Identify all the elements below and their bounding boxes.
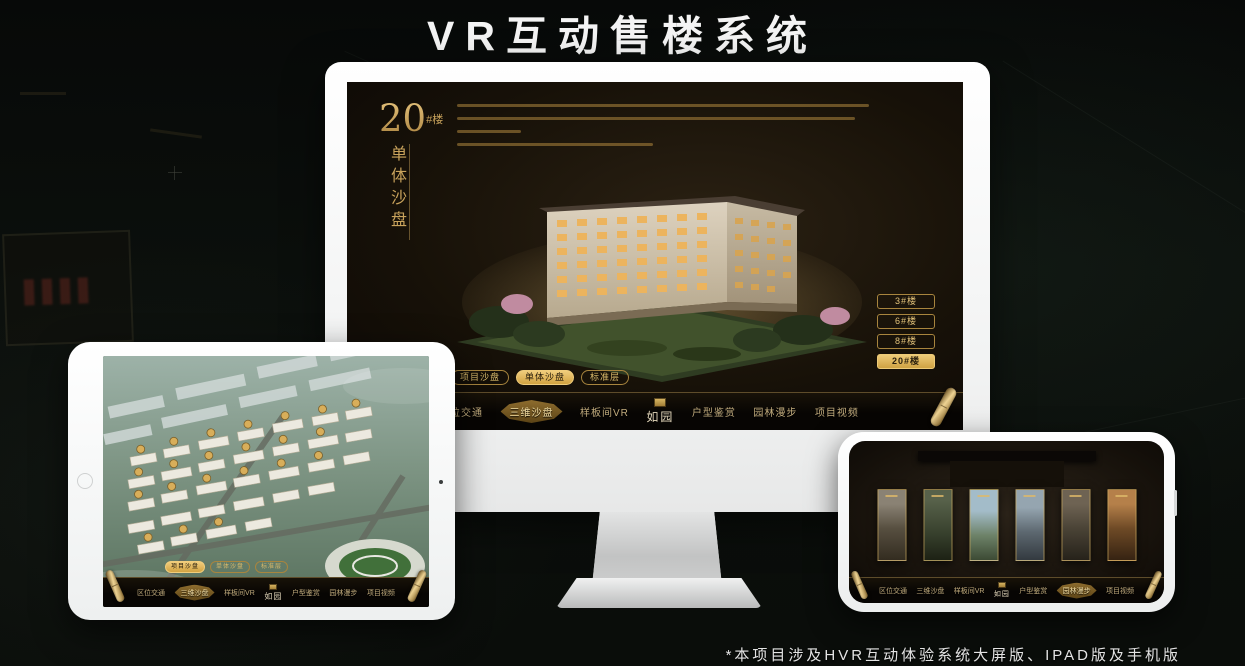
block-number-suffix: #楼 bbox=[426, 114, 443, 126]
ruyuan-logo: 如园 bbox=[994, 582, 1010, 599]
bg-plaque-seal bbox=[24, 277, 95, 305]
panel-card[interactable] bbox=[1015, 489, 1044, 561]
seal-icon bbox=[998, 582, 1006, 588]
nav-item-showroom-vr[interactable]: 样板间VR bbox=[224, 588, 255, 598]
building-render bbox=[447, 152, 877, 382]
tablet-navbar: 区位交通 三维沙盘 样板间VR 如园 户型鉴赏 园林漫步 项目视频 bbox=[103, 577, 429, 607]
block-number: 20 bbox=[379, 97, 426, 140]
bg-compass-icon bbox=[168, 166, 182, 180]
tablet-home-button[interactable] bbox=[77, 473, 93, 489]
scroll-handle-icon[interactable] bbox=[1144, 570, 1163, 600]
ruyuan-logo: 如园 bbox=[264, 584, 282, 602]
panel-card[interactable] bbox=[1107, 489, 1136, 561]
block-subtitle: 单体沙盘 bbox=[385, 145, 409, 265]
bg-map-road bbox=[1003, 61, 1245, 221]
panel-card[interactable] bbox=[969, 489, 998, 561]
tablet-subtabs: 项目沙盘 单体沙盘 标准层 bbox=[165, 561, 288, 573]
subtab-single-sandbox[interactable]: 单体沙盘 bbox=[516, 370, 574, 385]
presentation-stage: VR互动售楼系统 20#楼 单体沙盘 bbox=[0, 0, 1245, 666]
nav-item-3d-sandbox[interactable]: 三维沙盘 bbox=[501, 400, 563, 423]
logo-text: 如园 bbox=[994, 589, 1010, 599]
ruyuan-logo: 如园 bbox=[646, 398, 674, 425]
nav-item-project-video[interactable]: 项目视频 bbox=[815, 404, 859, 419]
block-title: 20#楼 单体沙盘 bbox=[379, 100, 443, 265]
panel-card[interactable] bbox=[1061, 489, 1090, 561]
bg-map-label bbox=[150, 128, 202, 138]
monitor-stand bbox=[592, 512, 722, 586]
floor-button-20[interactable]: 20#楼 bbox=[877, 354, 935, 369]
phone-screen: 区位交通 三维沙盘 样板间VR 如园 户型鉴赏 园林漫步 项目视频 bbox=[849, 441, 1164, 603]
nav-item-unit-gallery[interactable]: 户型鉴赏 bbox=[292, 588, 320, 598]
nav-item-garden-walk[interactable]: 园林漫步 bbox=[1057, 583, 1097, 599]
nav-item-location-traffic[interactable]: 区位交通 bbox=[879, 586, 907, 596]
subtab-single-sandbox[interactable]: 单体沙盘 bbox=[210, 561, 250, 573]
nav-item-project-video[interactable]: 项目视频 bbox=[367, 588, 395, 598]
subtab-project-sandbox[interactable]: 项目沙盘 bbox=[165, 561, 205, 573]
subtab-project-sandbox[interactable]: 项目沙盘 bbox=[451, 370, 509, 385]
panel-card[interactable] bbox=[877, 489, 906, 561]
floor-button-6[interactable]: 6#楼 bbox=[877, 314, 935, 329]
floor-selector: 3#楼 6#楼 8#楼 20#楼 bbox=[877, 294, 935, 374]
courtyard-gate-silhouette bbox=[932, 441, 1082, 487]
tablet-screen: 项目沙盘 单体沙盘 标准层 区位交通 三维沙盘 样板间VR 如园 户型鉴赏 园林… bbox=[103, 356, 429, 607]
nav-item-3d-sandbox[interactable]: 三维沙盘 bbox=[175, 585, 215, 601]
footnote: *本项目涉及HVR互动体验系统大屏版、IPAD版及手机版 bbox=[726, 644, 1181, 665]
phone-power-button[interactable] bbox=[1174, 490, 1177, 516]
scene-panel-row bbox=[877, 489, 1136, 561]
phone-device: 区位交通 三维沙盘 样板间VR 如园 户型鉴赏 园林漫步 项目视频 bbox=[838, 432, 1175, 612]
nav-item-garden-walk[interactable]: 园林漫步 bbox=[329, 588, 357, 598]
logo-text: 如园 bbox=[646, 408, 674, 425]
description-text-lines bbox=[457, 104, 877, 156]
nav-item-3d-sandbox[interactable]: 三维沙盘 bbox=[916, 586, 944, 596]
nav-item-unit-gallery[interactable]: 户型鉴赏 bbox=[692, 404, 736, 419]
seal-icon bbox=[654, 398, 666, 407]
scroll-handle-icon[interactable] bbox=[850, 570, 869, 600]
bg-map-label bbox=[20, 92, 66, 95]
subtab-standard-floor[interactable]: 标准层 bbox=[255, 561, 288, 573]
floor-button-8[interactable]: 8#楼 bbox=[877, 334, 935, 349]
floor-button-3[interactable]: 3#楼 bbox=[877, 294, 935, 309]
panel-card[interactable] bbox=[923, 489, 952, 561]
tablet-device: 项目沙盘 单体沙盘 标准层 区位交通 三维沙盘 样板间VR 如园 户型鉴赏 园林… bbox=[68, 342, 455, 620]
monitor-stand-base bbox=[556, 578, 762, 608]
nav-item-garden-walk[interactable]: 园林漫步 bbox=[753, 404, 797, 419]
monitor-subtabs: 项目沙盘 单体沙盘 标准层 bbox=[451, 370, 629, 385]
title-divider bbox=[409, 144, 410, 240]
nav-item-project-video[interactable]: 项目视频 bbox=[1106, 586, 1134, 596]
phone-navbar: 区位交通 三维沙盘 样板间VR 如园 户型鉴赏 园林漫步 项目视频 bbox=[849, 577, 1164, 603]
bg-plaque bbox=[2, 230, 134, 346]
logo-text: 如园 bbox=[264, 591, 282, 602]
seal-icon bbox=[269, 584, 277, 590]
page-title: VR互动售楼系统 bbox=[0, 2, 1245, 62]
subtab-standard-floor[interactable]: 标准层 bbox=[581, 370, 629, 385]
nav-item-unit-gallery[interactable]: 户型鉴赏 bbox=[1019, 586, 1047, 596]
nav-item-showroom-vr[interactable]: 样板间VR bbox=[580, 404, 629, 419]
scroll-handle-icon[interactable] bbox=[929, 386, 958, 428]
nav-item-showroom-vr[interactable]: 样板间VR bbox=[954, 586, 985, 596]
nav-item-location-traffic[interactable]: 区位交通 bbox=[137, 588, 165, 598]
tablet-camera-icon bbox=[439, 480, 443, 484]
